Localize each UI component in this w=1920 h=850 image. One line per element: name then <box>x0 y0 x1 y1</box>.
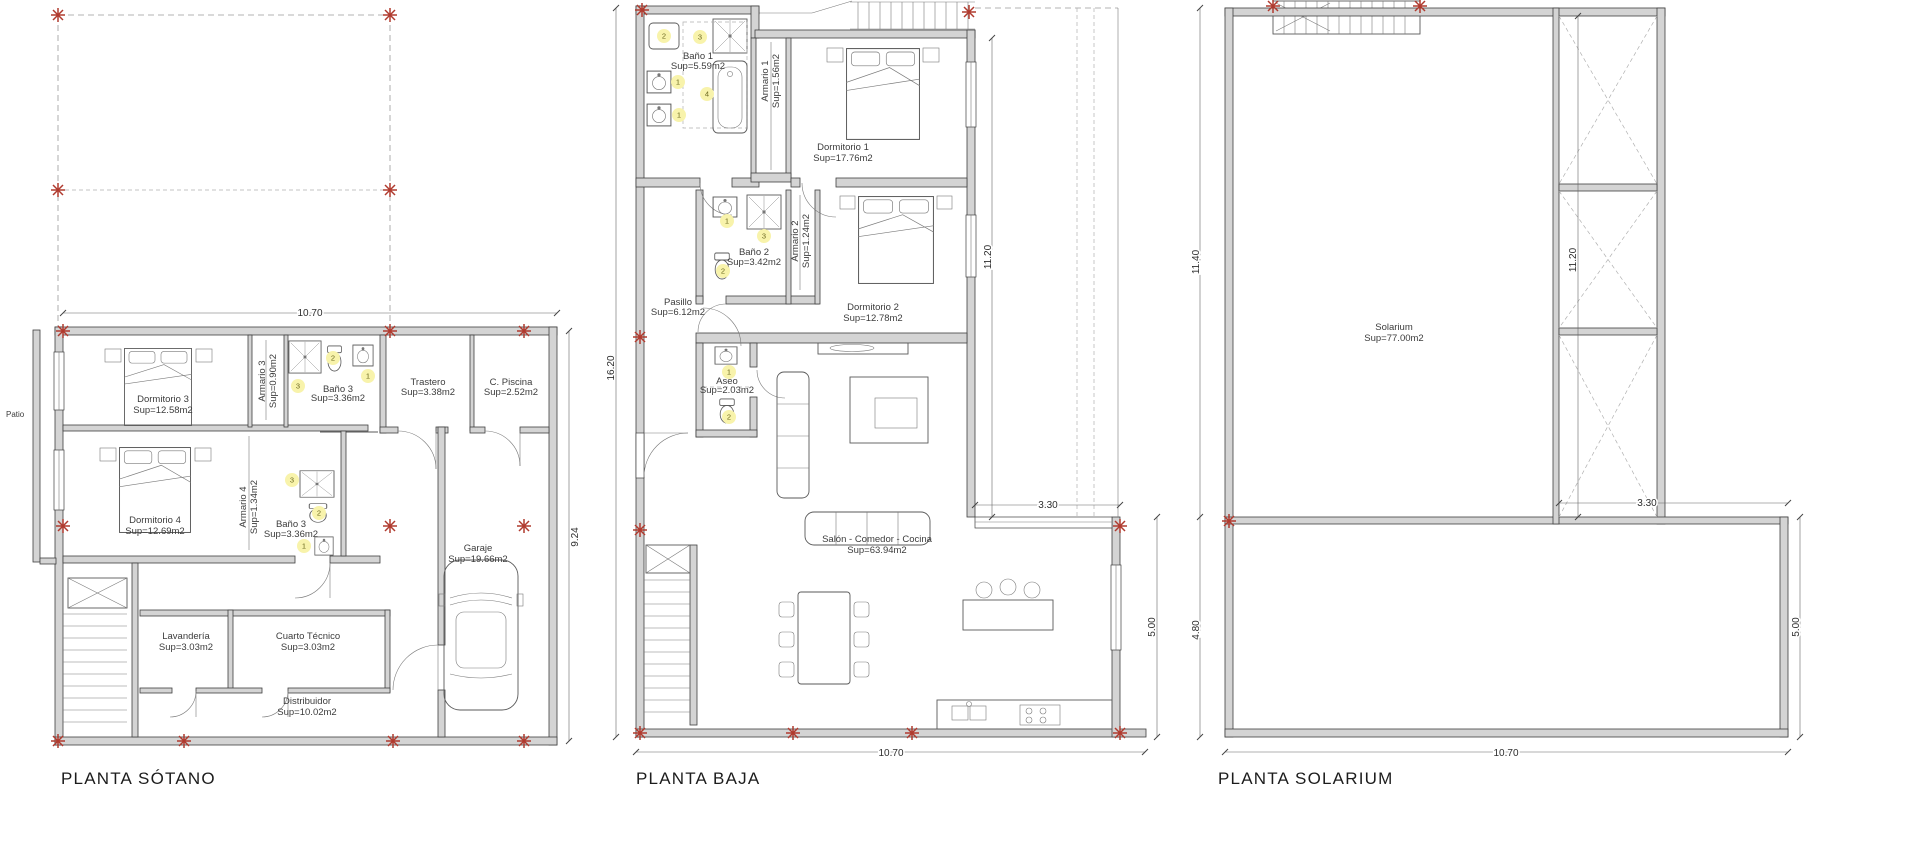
wall <box>815 190 820 304</box>
room-label: Salón - Comedor - Cocina <box>822 534 933 545</box>
nightstand-icon <box>100 448 116 461</box>
svg-text:3: 3 <box>290 476 294 485</box>
wall <box>726 296 819 304</box>
rug-icon <box>850 377 928 443</box>
wall <box>520 427 549 433</box>
shower-icon <box>713 19 747 53</box>
fixture-badge: 1 <box>671 75 685 89</box>
shower-icon <box>747 195 781 229</box>
car-icon <box>439 560 523 710</box>
wall <box>470 427 485 433</box>
wall <box>636 6 759 14</box>
stairs-icon <box>63 578 127 722</box>
bed-icon <box>858 197 934 284</box>
patio-label: Patio <box>6 410 25 419</box>
dim-label: 10.70 <box>878 748 903 759</box>
floorplan-sheet: 2 1 3 3 2 1 Dormitorio 3 Sup=12.58m2 Arm… <box>0 0 1920 850</box>
svg-text:2: 2 <box>662 32 666 41</box>
wall <box>690 545 697 725</box>
porch-outline <box>975 8 1118 517</box>
room-label: Dormitorio 2 <box>847 302 899 313</box>
nightstand-icon <box>840 196 855 209</box>
wall <box>750 343 757 367</box>
room-area: Sup=0.90m2 <box>268 354 279 408</box>
nightstand-icon <box>195 448 211 461</box>
room-label: Distribuidor <box>283 696 331 707</box>
wall <box>55 327 557 335</box>
fixture-badge: 3 <box>693 30 707 44</box>
dim-label: 4.80 <box>1191 620 1202 640</box>
dim-label: 5.00 <box>1791 617 1802 637</box>
wall <box>636 729 1146 737</box>
dim-label: 11.40 <box>1191 249 1202 274</box>
wall <box>696 333 967 343</box>
fixture-badge: 1 <box>361 369 375 383</box>
room-area: Sup=77.00m2 <box>1364 333 1423 344</box>
wall <box>140 688 172 693</box>
dim-label: 3.30 <box>1038 500 1058 511</box>
patio-wall <box>33 330 40 562</box>
wall <box>470 335 474 431</box>
plan-solarium: Solarium Sup=77.00m2 11.40 4.80 11.20 3.… <box>1191 0 1803 788</box>
room-area: Sup=3.36m2 <box>264 529 318 540</box>
plan-sotano: 2 1 3 3 2 1 Dormitorio 3 Sup=12.58m2 Arm… <box>6 8 581 788</box>
wall <box>1225 729 1788 737</box>
room-area: Sup=1.24m2 <box>801 214 812 268</box>
room-area: Sup=3.42m2 <box>727 257 781 268</box>
room-label: Armario 3 <box>257 360 268 401</box>
shower-icon <box>300 471 334 497</box>
wall <box>549 327 557 745</box>
svg-text:3: 3 <box>698 33 702 42</box>
wall <box>696 296 703 304</box>
coffee-table-icon <box>875 398 917 428</box>
fixture-badge: 2 <box>722 410 736 424</box>
kitchen-counter-icon <box>937 700 1112 729</box>
wall <box>380 427 398 433</box>
wall <box>751 173 791 182</box>
wall <box>341 431 346 556</box>
room-label: Dormitorio 3 <box>137 394 189 405</box>
room-label: Lavandería <box>162 631 210 642</box>
shower-icon <box>289 341 321 373</box>
svg-text:2: 2 <box>721 267 725 276</box>
room-area: Sup=3.38m2 <box>401 387 455 398</box>
svg-text:1: 1 <box>677 111 681 120</box>
room-area: Sup=3.03m2 <box>159 642 213 653</box>
wall <box>636 6 644 737</box>
fixture-badge: 1 <box>672 108 686 122</box>
wall <box>63 556 295 563</box>
wall <box>1559 328 1657 335</box>
svg-text:3: 3 <box>762 232 766 241</box>
wall <box>791 178 800 187</box>
sink-icon <box>715 347 737 364</box>
wall <box>1559 184 1657 191</box>
dim-label: 10.70 <box>297 308 322 319</box>
wall <box>755 30 975 38</box>
wall <box>1657 8 1665 524</box>
room-label: Garaje <box>464 543 493 554</box>
dim-label: 9.24 <box>570 527 581 547</box>
wall <box>696 190 703 302</box>
svg-text:1: 1 <box>302 542 306 551</box>
wall <box>228 610 233 692</box>
fixture-badge: 1 <box>297 539 311 553</box>
sink-icon <box>647 104 671 126</box>
svg-text:2: 2 <box>331 354 335 363</box>
plan-title-solarium: PLANTA SOLARIUM <box>1218 769 1393 788</box>
room-area: Sup=3.03m2 <box>281 642 335 653</box>
wall <box>1780 517 1788 737</box>
dim-label: 10.70 <box>1493 748 1518 759</box>
wall <box>380 335 386 433</box>
wall <box>330 556 380 563</box>
sink-icon <box>353 345 373 366</box>
wall <box>696 430 757 437</box>
fixture-badge: 3 <box>291 379 305 393</box>
wall <box>1553 8 1559 524</box>
svg-text:1: 1 <box>366 372 370 381</box>
wall <box>751 38 756 178</box>
wall <box>1225 8 1665 16</box>
fixture-badge: 1 <box>720 214 734 228</box>
bath-zone <box>683 22 747 128</box>
wall <box>63 425 368 431</box>
room-area: Sup=12.78m2 <box>843 313 902 324</box>
fixture-badge: 2 <box>312 506 326 520</box>
room-label: Armario 1 <box>760 60 771 101</box>
sink-icon <box>647 71 671 93</box>
sink-icon <box>713 197 737 217</box>
room-area: Sup=2.03m2 <box>700 385 754 396</box>
dim-label: 16.20 <box>606 355 617 380</box>
wall <box>636 178 700 187</box>
room-area: Sup=6.12m2 <box>651 307 705 318</box>
tv-icon <box>830 345 874 352</box>
dim-label: 11.20 <box>983 244 994 269</box>
room-area: Sup=10.02m2 <box>277 707 336 718</box>
room-area: Sup=2.52m2 <box>484 387 538 398</box>
svg-text:2: 2 <box>727 413 731 422</box>
wall <box>140 610 390 616</box>
wall <box>284 335 288 427</box>
room-label: Cuarto Técnico <box>276 631 340 642</box>
svg-text:3: 3 <box>296 382 300 391</box>
room-area: Sup=19.66m2 <box>448 554 507 565</box>
plan-baja: 2 3 1 4 1 1 3 2 1 2 Baño 1 Sup=5.59m2 Ar… <box>606 1 1160 788</box>
room-area: Sup=3.36m2 <box>311 393 365 404</box>
nightstand-icon <box>196 349 212 362</box>
patio-wall <box>40 558 56 564</box>
entry-door-gap <box>636 433 644 478</box>
room-area: Sup=12.69m2 <box>125 526 184 537</box>
wall <box>248 335 252 427</box>
room-label: Armario 2 <box>790 220 801 261</box>
svg-text:1: 1 <box>676 78 680 87</box>
fixture-badge: 3 <box>757 229 771 243</box>
svg-text:2: 2 <box>317 509 321 518</box>
wall <box>385 610 390 692</box>
wall <box>288 688 390 693</box>
room-area: Sup=63.94m2 <box>847 545 906 556</box>
kitchen-island-icon <box>963 579 1053 630</box>
nightstand-icon <box>827 48 843 62</box>
fixture-badge: 2 <box>657 29 671 43</box>
stairs-icon <box>1273 1 1420 34</box>
floor-plans-canvas: 2 1 3 3 2 1 Dormitorio 3 Sup=12.58m2 Arm… <box>0 0 1920 850</box>
fixture-badge: 3 <box>285 473 299 487</box>
wall <box>55 737 557 745</box>
fixture-badge: 2 <box>326 351 340 365</box>
room-label: Solarium <box>1375 322 1413 333</box>
nightstand-icon <box>937 196 952 209</box>
wall <box>786 38 791 178</box>
dim-label: 11.20 <box>1568 247 1579 272</box>
wall <box>1225 517 1788 524</box>
stairs-icon <box>644 545 690 712</box>
plan-title-sotano: PLANTA SÓTANO <box>61 769 216 788</box>
svg-text:4: 4 <box>705 90 709 99</box>
plan-title-baja: PLANTA BAJA <box>636 769 760 788</box>
fixture-badge: 4 <box>700 87 714 101</box>
nightstand-icon <box>105 349 121 362</box>
room-area: Sup=1.34m2 <box>249 480 260 534</box>
room-area: Sup=5.59m2 <box>671 61 725 72</box>
dim-label: 3.30 <box>1637 498 1657 509</box>
svg-text:1: 1 <box>725 217 729 226</box>
stairs-top-icon <box>692 1 975 29</box>
projection-outline <box>58 15 390 326</box>
section-markers <box>1222 0 1427 528</box>
dim-label: 5.00 <box>1147 617 1158 637</box>
window-band <box>975 517 1112 528</box>
wall <box>196 688 262 693</box>
tv-console-icon <box>818 343 908 354</box>
wall <box>836 178 967 187</box>
bed-icon <box>846 49 920 140</box>
room-area: Sup=1.56m2 <box>771 54 782 108</box>
room-area: Sup=12.58m2 <box>133 405 192 416</box>
room-label: Armario 4 <box>238 486 249 527</box>
room-label: Dormitorio 4 <box>129 515 181 526</box>
wall <box>132 563 138 737</box>
room-area: Sup=17.76m2 <box>813 153 872 164</box>
wall <box>1225 8 1233 737</box>
room-label: Dormitorio 1 <box>817 142 869 153</box>
dining-table-icon <box>779 592 869 684</box>
nightstand-icon <box>923 48 939 62</box>
